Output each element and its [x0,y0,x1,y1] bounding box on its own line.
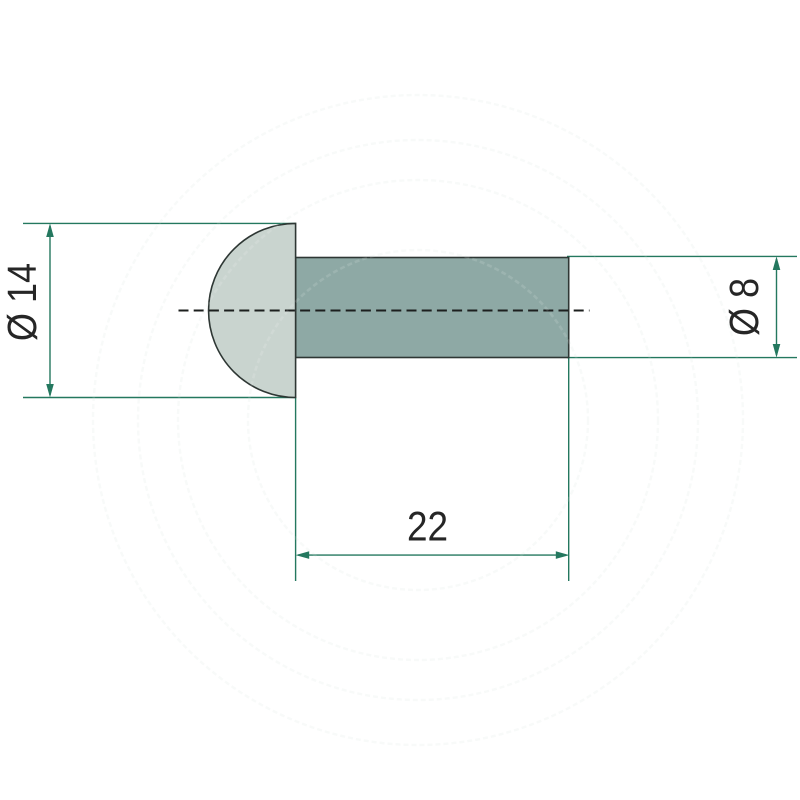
svg-text:22: 22 [407,503,448,550]
svg-text:Ø 14: Ø 14 [0,263,46,341]
